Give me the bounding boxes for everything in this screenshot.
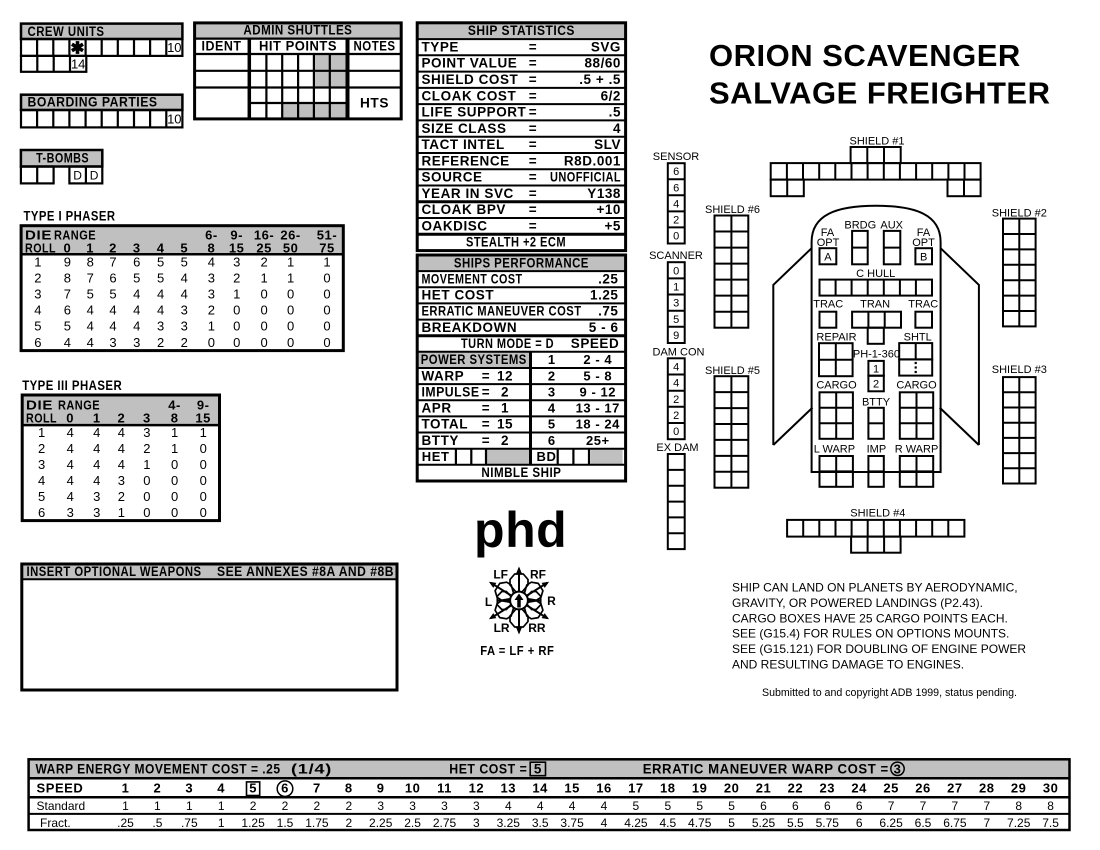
svg-text:D: D (73, 169, 82, 183)
svg-text:15: 15 (195, 410, 211, 425)
svg-text:4: 4 (38, 473, 45, 488)
svg-text:4: 4 (87, 303, 94, 318)
svg-text:4: 4 (673, 378, 679, 390)
svg-text:=: = (529, 40, 537, 55)
svg-text:=: = (482, 417, 490, 432)
svg-text:10: 10 (167, 112, 181, 127)
svg-text:0: 0 (673, 231, 679, 243)
svg-text:9 - 12: 9 - 12 (580, 384, 617, 399)
svg-text:88/60: 88/60 (584, 56, 621, 71)
svg-text:REPAIR: REPAIR (816, 331, 856, 343)
svg-text:3: 3 (157, 319, 164, 334)
svg-text:2.25: 2.25 (369, 816, 393, 830)
svg-text:=: = (482, 433, 490, 448)
svg-text:=: = (529, 218, 537, 233)
svg-text:0: 0 (200, 457, 207, 472)
svg-text:CREW UNITS: CREW UNITS (28, 24, 105, 39)
svg-text:4: 4 (87, 319, 94, 334)
svg-text:15: 15 (564, 781, 580, 796)
svg-text:7: 7 (64, 287, 71, 302)
svg-text:2: 2 (345, 799, 352, 813)
svg-text:D: D (90, 169, 99, 183)
svg-text:4: 4 (157, 287, 164, 302)
svg-text:1: 1 (673, 281, 679, 293)
svg-text:A: A (824, 252, 832, 264)
svg-text:1: 1 (323, 255, 330, 270)
svg-text:2 - 4: 2 - 4 (583, 352, 612, 367)
svg-text:SEE (G15.4) FOR RULES ON OPTIO: SEE (G15.4) FOR RULES ON OPTIONS MOUNTS. (732, 627, 1009, 641)
svg-text:CARGO: CARGO (816, 380, 857, 392)
svg-text:Fract.: Fract. (40, 816, 71, 830)
svg-text:4: 4 (601, 816, 608, 830)
svg-text:5.5: 5.5 (787, 816, 804, 830)
svg-text:APR: APR (422, 401, 452, 416)
svg-text:9: 9 (377, 781, 385, 796)
svg-text:2: 2 (181, 335, 188, 350)
svg-text:(1/4): (1/4) (291, 761, 332, 776)
svg-text:2: 2 (143, 441, 150, 456)
svg-text:0: 0 (287, 303, 294, 318)
svg-text:4: 4 (67, 489, 74, 504)
svg-text:6: 6 (109, 271, 116, 286)
svg-text:5: 5 (109, 287, 116, 302)
svg-text:HET COST =: HET COST = (449, 761, 527, 776)
svg-text:4: 4 (118, 457, 125, 472)
svg-text:8: 8 (87, 255, 94, 270)
svg-text:2.5: 2.5 (404, 816, 421, 830)
svg-text:.75: .75 (598, 304, 618, 319)
svg-text:0: 0 (171, 473, 178, 488)
svg-text:22: 22 (788, 781, 804, 796)
svg-text:1: 1 (122, 799, 129, 813)
svg-text:17: 17 (628, 781, 644, 796)
svg-text:4: 4 (93, 473, 100, 488)
svg-text:5: 5 (133, 271, 140, 286)
svg-text:1: 1 (233, 287, 240, 302)
svg-text:7: 7 (109, 255, 116, 270)
svg-text:LIFE SUPPORT: LIFE SUPPORT (422, 105, 527, 120)
svg-text:MOVEMENT COST: MOVEMENT COST (422, 271, 523, 286)
svg-text:8: 8 (345, 781, 353, 796)
svg-text:B: B (920, 252, 927, 264)
svg-text:3.5: 3.5 (532, 816, 549, 830)
svg-text:2: 2 (501, 384, 509, 399)
svg-text:1: 1 (143, 457, 150, 472)
svg-text:=: = (529, 72, 537, 87)
svg-text:6.75: 6.75 (943, 816, 967, 830)
svg-text:.25: .25 (117, 816, 134, 830)
svg-text:LF: LF (493, 567, 508, 581)
svg-text:1.25: 1.25 (590, 288, 618, 303)
svg-text:6.25: 6.25 (879, 816, 903, 830)
svg-text:4: 4 (569, 799, 576, 813)
svg-text:4: 4 (673, 361, 679, 373)
svg-text:SENSOR: SENSOR (653, 151, 700, 163)
svg-text:3: 3 (673, 298, 679, 310)
svg-text:75: 75 (319, 240, 335, 255)
svg-text:AND RESULTING DAMAGE TO ENGINE: AND RESULTING DAMAGE TO ENGINES. (732, 658, 964, 672)
svg-text:3: 3 (109, 335, 116, 350)
svg-text:0: 0 (200, 505, 207, 520)
svg-text:0: 0 (287, 287, 294, 302)
svg-text:0: 0 (260, 303, 267, 318)
svg-text:TYPE: TYPE (422, 40, 459, 55)
svg-text:FA = LF + RF: FA = LF + RF (480, 643, 554, 658)
svg-text:4: 4 (217, 781, 225, 796)
svg-text:1: 1 (218, 799, 225, 813)
svg-text:TRAC: TRAC (908, 299, 938, 311)
svg-text:4: 4 (181, 271, 188, 286)
svg-text:CLOAK BPV: CLOAK BPV (422, 202, 506, 217)
svg-text:4: 4 (157, 240, 165, 255)
svg-text:1: 1 (186, 799, 193, 813)
svg-text:18 - 24: 18 - 24 (576, 417, 621, 432)
svg-text:IMP: IMP (867, 444, 887, 456)
svg-text:TRAN: TRAN (860, 299, 890, 311)
svg-text:11: 11 (437, 781, 452, 796)
svg-text:8: 8 (1047, 799, 1054, 813)
svg-text:4: 4 (87, 335, 94, 350)
svg-text:4: 4 (109, 319, 116, 334)
svg-text:L WARP: L WARP (814, 444, 855, 456)
svg-text:ROLL: ROLL (25, 240, 56, 255)
svg-text:2: 2 (873, 379, 879, 391)
svg-text:=: = (529, 88, 537, 103)
svg-text:2: 2 (260, 255, 267, 270)
svg-text:10: 10 (405, 781, 421, 796)
svg-text:3: 3 (208, 287, 215, 302)
svg-text:1: 1 (260, 271, 267, 286)
svg-text:6: 6 (792, 799, 799, 813)
svg-text:CARGO BOXES HAVE 25 CARGO POIN: CARGO BOXES HAVE 25 CARGO POINTS EACH. (732, 611, 1008, 625)
svg-text:0: 0 (143, 505, 150, 520)
svg-text:1: 1 (86, 240, 94, 255)
svg-text:3: 3 (473, 799, 480, 813)
svg-text:5: 5 (548, 417, 556, 432)
svg-text:3: 3 (409, 799, 416, 813)
svg-text:PH-1-360: PH-1-360 (853, 348, 900, 360)
svg-text:13 - 17: 13 - 17 (576, 401, 620, 416)
svg-text:28: 28 (979, 781, 995, 796)
svg-text:HIT POINTS: HIT POINTS (259, 38, 337, 53)
svg-text:4: 4 (505, 799, 512, 813)
svg-text:RF: RF (530, 567, 546, 581)
svg-text:SVG: SVG (591, 40, 621, 55)
svg-text:4.5: 4.5 (659, 816, 676, 830)
svg-text:3: 3 (67, 505, 74, 520)
svg-text:6: 6 (38, 505, 45, 520)
svg-text:4: 4 (67, 441, 74, 456)
svg-text:TYPE III PHASER: TYPE III PHASER (22, 378, 122, 393)
svg-text:14: 14 (71, 56, 85, 71)
svg-text:4: 4 (118, 441, 125, 456)
svg-text:WARP ENERGY MOVEMENT COST = .2: WARP ENERGY MOVEMENT COST = .25 (36, 761, 281, 776)
svg-text:2: 2 (250, 799, 257, 813)
svg-text:4.75: 4.75 (688, 816, 712, 830)
svg-text:10: 10 (167, 40, 181, 55)
svg-text:1: 1 (208, 319, 215, 334)
svg-text:0: 0 (260, 319, 267, 334)
svg-text:7: 7 (87, 271, 94, 286)
svg-text:6: 6 (673, 182, 679, 194)
svg-text:13: 13 (501, 781, 517, 796)
svg-text:3: 3 (185, 781, 193, 796)
svg-text:=: = (529, 202, 537, 217)
svg-text:WARP: WARP (422, 368, 465, 383)
svg-text:TYPE I PHASER: TYPE I PHASER (24, 209, 116, 224)
svg-text:1.75: 1.75 (305, 816, 329, 830)
svg-text:REFERENCE: REFERENCE (422, 153, 510, 168)
svg-text:2: 2 (208, 303, 215, 318)
svg-text:5: 5 (249, 781, 257, 796)
svg-text:14: 14 (532, 781, 548, 796)
svg-text:=: = (529, 153, 537, 168)
svg-text:AUX: AUX (880, 219, 903, 231)
svg-text:2: 2 (154, 781, 162, 796)
svg-text:.75: .75 (181, 816, 198, 830)
svg-text:0: 0 (673, 265, 679, 277)
svg-text:Submitted to and copyright ADB: Submitted to and copyright ADB 1999, sta… (762, 687, 1017, 699)
svg-text:SALVAGE FREIGHTER: SALVAGE FREIGHTER (709, 76, 1050, 111)
svg-text:=: = (529, 56, 537, 71)
svg-text:0: 0 (233, 319, 240, 334)
svg-text:0: 0 (143, 473, 150, 488)
svg-text:0: 0 (66, 410, 74, 425)
svg-text:0: 0 (143, 489, 150, 504)
svg-text:0: 0 (323, 271, 330, 286)
svg-text:.5: .5 (609, 105, 621, 120)
svg-text:5: 5 (64, 319, 71, 334)
svg-text:6/2: 6/2 (601, 88, 621, 103)
svg-text:25: 25 (256, 240, 272, 255)
svg-text:GRAVITY, OR POWERED LANDINGS (: GRAVITY, OR POWERED LANDINGS (P2.43). (732, 596, 983, 610)
svg-text:SHIELD #4: SHIELD #4 (850, 508, 905, 520)
svg-text:3: 3 (208, 271, 215, 286)
svg-text:.5 + .5: .5 + .5 (579, 72, 621, 87)
svg-text:1: 1 (118, 505, 125, 520)
svg-text:16: 16 (596, 781, 612, 796)
svg-text:DAM CON: DAM CON (653, 346, 705, 358)
svg-text:SEE ANNEXES #8A AND #8B: SEE ANNEXES #8A AND #8B (217, 564, 394, 579)
svg-text:6: 6 (281, 781, 289, 796)
svg-text:23: 23 (820, 781, 836, 796)
svg-text:SHIELD COST: SHIELD COST (422, 72, 519, 87)
svg-text:8: 8 (208, 240, 216, 255)
svg-text:=: = (529, 121, 537, 136)
svg-text:HTS: HTS (360, 96, 389, 111)
svg-text:26: 26 (915, 781, 931, 796)
svg-text:phd: phd (474, 502, 567, 558)
svg-text:SHIELD #1: SHIELD #1 (849, 136, 904, 148)
svg-text:6: 6 (856, 799, 863, 813)
svg-text:POWER SYSTEMS: POWER SYSTEMS (421, 352, 527, 367)
svg-text:6: 6 (133, 255, 140, 270)
svg-text:4: 4 (67, 473, 74, 488)
svg-text:6: 6 (64, 303, 71, 318)
svg-text:0: 0 (673, 426, 679, 438)
svg-text:7.5: 7.5 (1042, 816, 1059, 830)
svg-text:3: 3 (133, 335, 140, 350)
svg-text:3: 3 (181, 303, 188, 318)
svg-text:2: 2 (673, 214, 679, 226)
svg-text:L: L (485, 595, 492, 609)
svg-text:3: 3 (143, 425, 150, 440)
svg-text:BRDG: BRDG (844, 219, 876, 231)
svg-text:R WARP: R WARP (895, 444, 939, 456)
svg-text:Y138: Y138 (587, 186, 621, 201)
svg-text:8: 8 (171, 410, 179, 425)
svg-text:12: 12 (469, 781, 485, 796)
svg-text:2: 2 (548, 368, 556, 383)
svg-text:SIZE CLASS: SIZE CLASS (422, 121, 507, 136)
svg-text:4: 4 (118, 425, 125, 440)
svg-text:2: 2 (501, 433, 509, 448)
svg-text:6: 6 (673, 166, 679, 178)
svg-text:1: 1 (171, 425, 178, 440)
svg-text:0: 0 (323, 335, 330, 350)
svg-text:24: 24 (851, 781, 867, 796)
svg-text:3: 3 (93, 489, 100, 504)
svg-text:TACT INTEL: TACT INTEL (422, 137, 505, 152)
svg-text:1: 1 (200, 425, 207, 440)
svg-text:IMPULSE: IMPULSE (422, 384, 480, 399)
svg-text:5: 5 (157, 271, 164, 286)
svg-text:SEE (G15.121) FOR DOUBLING OF: SEE (G15.121) FOR DOUBLING OF ENGINE POW… (732, 642, 1026, 656)
svg-text:7: 7 (920, 799, 927, 813)
svg-text:TRAC: TRAC (813, 299, 843, 311)
svg-text:6: 6 (824, 799, 831, 813)
svg-text:BTTY: BTTY (862, 396, 891, 408)
svg-text:3: 3 (93, 505, 100, 520)
svg-text:0: 0 (200, 441, 207, 456)
svg-text:BOARDING PARTIES: BOARDING PARTIES (28, 95, 158, 110)
svg-text:20: 20 (724, 781, 740, 796)
svg-text:1: 1 (122, 781, 130, 796)
svg-text:Standard: Standard (37, 799, 86, 813)
svg-text:5: 5 (181, 255, 188, 270)
svg-text:SLV: SLV (594, 137, 621, 152)
svg-text:12: 12 (497, 368, 513, 383)
svg-text:3: 3 (377, 799, 384, 813)
svg-text:0: 0 (260, 335, 267, 350)
svg-text:HET COST: HET COST (422, 288, 495, 303)
svg-text:=: = (529, 170, 537, 185)
svg-text:SHTL: SHTL (904, 331, 932, 343)
svg-text:6: 6 (760, 799, 767, 813)
svg-text:STEALTH +2 ECM: STEALTH +2 ECM (466, 235, 566, 250)
svg-text:2: 2 (157, 335, 164, 350)
svg-text:1: 1 (873, 363, 879, 375)
svg-text:=: = (529, 105, 537, 120)
svg-text:TOTAL: TOTAL (422, 417, 469, 432)
svg-text:9: 9 (673, 330, 679, 342)
svg-text:27: 27 (947, 781, 963, 796)
svg-text:9: 9 (64, 255, 71, 270)
svg-text:CLOAK COST: CLOAK COST (422, 88, 517, 103)
svg-text:SHIP CAN LAND ON PLANETS BY AE: SHIP CAN LAND ON PLANETS BY AERODYNAMIC, (732, 581, 1018, 595)
svg-text:0: 0 (233, 303, 240, 318)
svg-text:4: 4 (537, 799, 544, 813)
svg-text:4: 4 (133, 287, 140, 302)
svg-text:R8D.001: R8D.001 (564, 153, 621, 168)
svg-text:+10: +10 (596, 202, 621, 217)
svg-text:4: 4 (601, 799, 608, 813)
svg-text:6: 6 (548, 433, 556, 448)
svg-text:ERRATIC MANEUVER WARP COST =: ERRATIC MANEUVER WARP COST = (643, 761, 889, 776)
svg-text:4.25: 4.25 (624, 816, 648, 830)
svg-text:C HULL: C HULL (856, 268, 895, 280)
svg-text:7: 7 (952, 799, 959, 813)
svg-text:=: = (482, 401, 490, 416)
svg-text:21: 21 (756, 781, 772, 796)
svg-text:2: 2 (314, 799, 321, 813)
svg-text:SHIELD #3: SHIELD #3 (992, 364, 1047, 376)
svg-text:7: 7 (888, 799, 895, 813)
svg-text:3: 3 (34, 287, 41, 302)
svg-text:0: 0 (323, 287, 330, 302)
svg-text:4: 4 (133, 303, 140, 318)
svg-text:4: 4 (67, 457, 74, 472)
svg-text:1: 1 (218, 816, 225, 830)
svg-text:SCANNER: SCANNER (649, 250, 703, 262)
svg-text:1: 1 (154, 799, 161, 813)
svg-text:1: 1 (548, 352, 556, 367)
svg-text:YEAR IN SVC: YEAR IN SVC (422, 186, 514, 201)
svg-text:NIMBLE SHIP: NIMBLE SHIP (481, 465, 561, 480)
svg-text:=: = (482, 384, 490, 399)
svg-text:0: 0 (171, 505, 178, 520)
svg-text:1: 1 (501, 401, 509, 416)
svg-text:3: 3 (441, 799, 448, 813)
svg-text:0: 0 (287, 319, 294, 334)
svg-text:1.5: 1.5 (277, 816, 294, 830)
svg-text:25+: 25+ (586, 433, 610, 448)
svg-text:5: 5 (696, 799, 703, 813)
svg-text:0: 0 (233, 335, 240, 350)
svg-text:1: 1 (38, 425, 45, 440)
svg-text:ERRATIC MANEUVER COST: ERRATIC MANEUVER COST (422, 304, 582, 319)
svg-text:3: 3 (233, 255, 240, 270)
svg-text:SOURCE: SOURCE (422, 170, 483, 185)
svg-text:4: 4 (109, 303, 116, 318)
svg-text:BTTY: BTTY (422, 433, 459, 448)
svg-text:LR: LR (494, 621, 510, 635)
svg-text:ADMIN SHUTTLES: ADMIN SHUTTLES (243, 23, 352, 38)
svg-text:5: 5 (673, 314, 679, 326)
svg-text:50: 50 (283, 240, 299, 255)
svg-text:IDENT: IDENT (202, 38, 242, 53)
svg-text:SPEED: SPEED (37, 781, 84, 796)
svg-text:3: 3 (133, 240, 141, 255)
svg-text:8: 8 (64, 271, 71, 286)
svg-text:=: = (529, 186, 537, 201)
svg-text:3: 3 (38, 457, 45, 472)
svg-text:15: 15 (229, 240, 245, 255)
svg-text:BD: BD (537, 449, 557, 464)
svg-text:4: 4 (93, 425, 100, 440)
svg-text:8: 8 (1015, 799, 1022, 813)
svg-text:4: 4 (548, 401, 556, 416)
svg-text:0: 0 (323, 319, 330, 334)
svg-text:3: 3 (143, 410, 151, 425)
svg-text:6: 6 (34, 335, 41, 350)
svg-text:2: 2 (118, 410, 126, 425)
svg-text:0: 0 (64, 240, 72, 255)
svg-text:5.25: 5.25 (752, 816, 776, 830)
svg-text:5: 5 (87, 287, 94, 302)
svg-text:5: 5 (534, 761, 542, 776)
svg-text:CARGO: CARGO (896, 380, 937, 392)
